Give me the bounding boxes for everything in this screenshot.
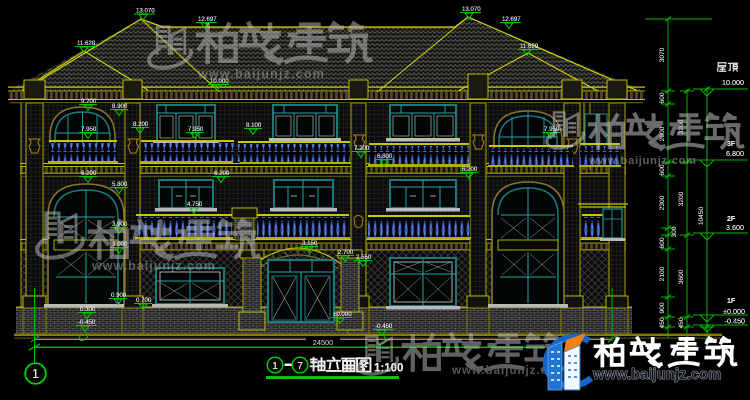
svg-text:300: 300 [671, 226, 678, 237]
svg-text:2.550: 2.550 [356, 254, 372, 261]
svg-text:www.baijunjz.com: www.baijunjz.com [91, 259, 216, 273]
svg-text:5.800: 5.800 [112, 181, 128, 188]
svg-text:1F: 1F [727, 298, 736, 305]
svg-text:-0.450: -0.450 [725, 317, 745, 326]
svg-text:600: 600 [659, 92, 666, 103]
svg-text:7.950: 7.950 [81, 126, 97, 133]
svg-text:7.950: 7.950 [188, 126, 204, 133]
svg-text:www.baijunjz.com: www.baijunjz.com [592, 367, 721, 383]
svg-text:www.baijunjz.com: www.baijunjz.com [588, 155, 697, 167]
svg-text:7.200: 7.200 [354, 145, 370, 152]
svg-text:0.700: 0.700 [136, 297, 152, 304]
svg-text:12.697: 12.697 [198, 16, 217, 23]
svg-text:1: 1 [32, 367, 39, 381]
svg-text:3.150: 3.150 [302, 240, 318, 247]
svg-text:10450: 10450 [698, 207, 705, 226]
svg-text:11.629: 11.629 [520, 43, 539, 50]
svg-text:6.800: 6.800 [726, 149, 744, 158]
svg-text:12.697: 12.697 [502, 16, 521, 23]
svg-text:0.900: 0.900 [111, 292, 127, 299]
svg-text:6.200: 6.200 [81, 170, 97, 177]
svg-text:900: 900 [659, 302, 666, 313]
svg-text:13.070: 13.070 [136, 8, 155, 15]
svg-text:3200: 3200 [678, 191, 685, 206]
svg-text:600: 600 [659, 237, 666, 248]
svg-text:8.900: 8.900 [112, 103, 128, 110]
svg-text:3.600: 3.600 [726, 223, 744, 232]
svg-text:10.000: 10.000 [722, 78, 744, 87]
svg-text:2300: 2300 [659, 195, 666, 210]
svg-text:2100: 2100 [659, 266, 666, 281]
svg-text:450: 450 [659, 317, 666, 328]
svg-text:2.700: 2.700 [338, 249, 354, 256]
svg-text:450: 450 [678, 317, 685, 328]
svg-text:24500: 24500 [313, 338, 334, 347]
svg-text:www.baijunjz.com: www.baijunjz.com [197, 67, 325, 81]
svg-text:8.100: 8.100 [246, 122, 262, 129]
svg-text:0.300: 0.300 [80, 306, 96, 313]
svg-text:6.800: 6.800 [377, 153, 393, 160]
svg-text:±0.000: ±0.000 [723, 307, 745, 316]
svg-text:6.200: 6.200 [214, 170, 230, 177]
svg-text:4.750: 4.750 [187, 201, 203, 208]
svg-text:-0.450: -0.450 [375, 323, 393, 330]
svg-text:±0.000: ±0.000 [333, 311, 352, 318]
svg-text:1: 1 [272, 360, 278, 372]
svg-text:3070: 3070 [659, 47, 666, 62]
svg-text:3600: 3600 [678, 269, 685, 284]
svg-text:-0.450: -0.450 [78, 319, 96, 326]
svg-text:13.070: 13.070 [462, 6, 481, 13]
svg-text:8.200: 8.200 [133, 121, 149, 128]
svg-text:2F: 2F [727, 216, 736, 223]
svg-text:9.200: 9.200 [81, 98, 97, 105]
svg-text:6.200: 6.200 [462, 166, 478, 173]
svg-text:7: 7 [297, 360, 303, 372]
svg-text:11.628: 11.628 [77, 40, 96, 47]
